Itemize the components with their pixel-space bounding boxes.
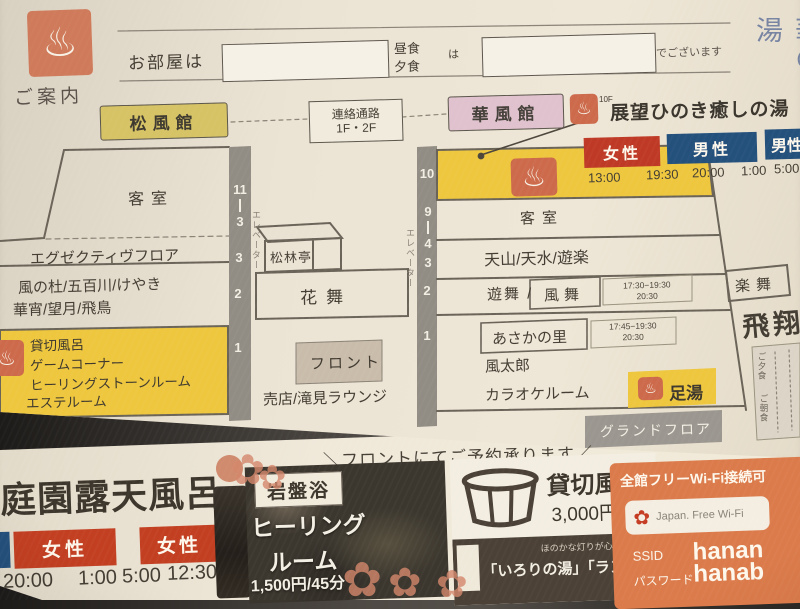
karaoke-label: カラオケルーム	[485, 382, 590, 406]
rooftop-time-3: 20:00	[692, 165, 725, 181]
futaro-label: 風太郎	[485, 354, 531, 376]
rooftop-bath-title: 展望ひのき癒しの湯	[610, 93, 800, 125]
wifi-ssid-label: SSID	[633, 548, 664, 564]
room-name-box	[222, 40, 390, 82]
ganbanyoku-line1: ヒーリング	[250, 505, 366, 543]
rotenburo-time-3: 5:00	[122, 564, 162, 588]
right-floor-3: 3	[417, 255, 439, 270]
right-elevator-label: エレベーター	[404, 228, 417, 328]
facility-private-bath: 貸切風呂	[30, 333, 85, 354]
dinner-label: 夕食	[394, 56, 421, 76]
ganbanyoku-title: 岩盤浴	[267, 475, 331, 504]
wifi-provider-pill: ✿ Japan. Free Wi-Fi	[625, 496, 770, 535]
rotenburo-time-1: 20:00	[3, 569, 54, 594]
asaka-times: 17:45−19:30 20:30	[594, 320, 673, 344]
wifi-password-value: hanab	[693, 558, 765, 588]
shorintei-label: 松林亭	[270, 246, 312, 266]
wifi-provider-text: Japan. Free Wi-Fi	[656, 508, 744, 523]
rotenburo-time-4: 12:30	[167, 561, 218, 586]
left-elevator-label: エレベーター	[250, 210, 263, 310]
ganbanyoku-price: 1,500円/45分	[250, 569, 345, 596]
rooftop-time-1: 13:00	[588, 170, 621, 186]
left-dining-line1: 風の杜/五百川/けやき	[18, 273, 162, 298]
matsukaze-wing-label: 松風館	[100, 102, 229, 140]
corridor-label: 連絡通路 1F・2F	[308, 99, 403, 143]
hanamai-label: 花舞	[300, 282, 353, 308]
rooftop-female-badge: 女性	[584, 136, 661, 168]
kazamai-times: 17:30−19:30 20:30	[607, 279, 688, 303]
tenzan-row-label: 天山/天水/遊楽	[484, 244, 589, 271]
asaka-label: あさかの里	[492, 326, 568, 349]
right-floor-1: 1	[416, 328, 438, 343]
legend-dinner-label: ご夕食	[756, 352, 768, 388]
facility-esthetic-room: エステルーム	[26, 390, 107, 412]
japan-wifi-flower-icon: ✿	[633, 505, 651, 530]
ashiyu-onsen-icon: ♨	[638, 377, 664, 401]
shop-lounge-label: 売店/滝見ラウンジ	[263, 385, 388, 409]
bucket-icon	[458, 466, 544, 531]
rotenburo-male-badge-clipped	[0, 532, 11, 569]
left-floor-11: 11	[229, 182, 251, 197]
lunch-label: 昼食	[394, 38, 421, 58]
guide-map-sheet: ♨ ご案内 お部屋は 昼食 夕食 は でございます 華の湯 松風館 連絡通路 1…	[0, 0, 800, 470]
onsen-icon: ♨	[27, 9, 93, 77]
right-floor-range-bar	[427, 221, 429, 234]
rooftop-onsen-icon: ♨	[570, 94, 599, 125]
guide-label: ご案内	[14, 81, 84, 110]
ganbanyoku-card: 岩盤浴 ヒーリング ルーム 1,500円/45分	[245, 461, 450, 604]
front-desk-label: フロント	[310, 351, 383, 374]
asaka-time-2: 20:30	[594, 331, 672, 344]
hana-wing-label: 華風館	[448, 93, 565, 131]
kazamai-time-2: 20:30	[607, 290, 687, 303]
right-guest-rooms-label: 客室	[520, 206, 565, 228]
legend-breakfast-label: ご朝食	[758, 394, 770, 430]
corridor-line1: 連絡通路	[332, 106, 380, 121]
corridor-line2: 1F・2F	[336, 120, 376, 135]
rooftop-time-2: 19:30	[646, 167, 679, 183]
meal-particle: は	[448, 46, 459, 62]
rotenburo-title: 庭園露天風呂	[0, 464, 223, 524]
left-floor-range-bar	[239, 199, 241, 212]
rotenburo-female-badge-1: 女性	[13, 528, 116, 569]
rooftop-floor-tag: 10F	[599, 95, 609, 104]
right-floor-10: 10	[416, 166, 438, 181]
kazamai-label: 風舞	[544, 283, 585, 305]
polite-suffix: でございます	[656, 43, 722, 61]
rooftop-male-badge: 男性	[667, 132, 758, 164]
facility-game-corner: ゲームコーナー	[30, 352, 125, 374]
rotenburo-female-badge-2: 女性	[139, 525, 218, 565]
wifi-card: 全館フリーWi-Fi接続可 ✿ Japan. Free Wi-Fi SSID h…	[610, 457, 800, 609]
left-floor-3b: 3	[228, 250, 250, 265]
left-floor-3a: 3	[229, 214, 251, 229]
left-dining-line2: 華宵/望月/飛鳥	[13, 297, 112, 321]
rooftop-time-5: 5:00	[774, 161, 800, 177]
baths-badge	[457, 545, 481, 592]
rotenburo-time-2: 1:00	[78, 566, 118, 590]
private-bath-onsen-icon: ♨	[0, 340, 24, 376]
meal-box	[482, 33, 657, 78]
ganbanyoku-title-box: 岩盤浴	[254, 471, 343, 508]
left-guest-rooms-label: 客室	[128, 184, 175, 209]
yumai-label: 遊舞 /	[487, 282, 534, 304]
room-label: お部屋は	[128, 47, 205, 74]
left-floor-2: 2	[227, 286, 249, 301]
left-floor-1: 1	[227, 340, 249, 355]
rooftop-floor-onsen-icon: ♨	[511, 157, 558, 196]
executive-floor-label: エグゼクティヴフロア	[30, 244, 180, 269]
right-floor-4: 4	[417, 236, 439, 251]
wifi-title: 全館フリーWi-Fi接続可	[620, 466, 767, 491]
ashiyu-label: 足湯	[669, 379, 704, 405]
hisho-label: 飛翔	[740, 300, 800, 344]
right-floor-9: 9	[417, 204, 439, 219]
rooftop-time-4: 1:00	[741, 163, 767, 179]
brand-logo: 華の湯	[748, 16, 800, 92]
wifi-password-label: パスワード	[633, 571, 694, 590]
rooftop-male2-badge: 男性	[765, 128, 800, 159]
ground-floor-label: グランドフロア	[600, 419, 712, 442]
rakumai-label: 楽舞	[734, 273, 777, 297]
right-floor-2: 2	[416, 283, 438, 298]
